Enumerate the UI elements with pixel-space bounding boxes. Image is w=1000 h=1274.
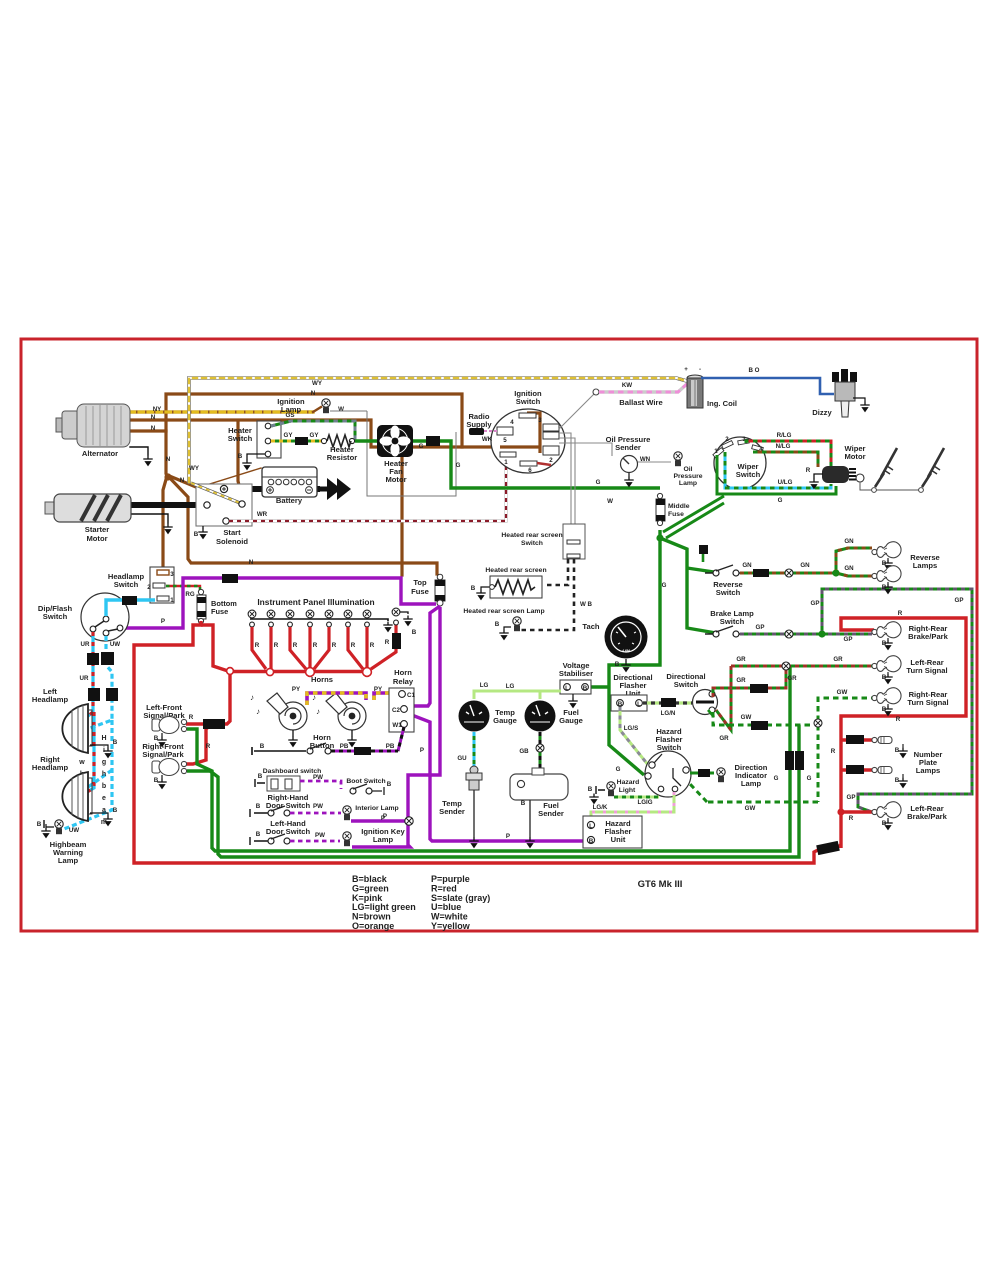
svg-text:WR: WR: [257, 511, 268, 518]
svg-text:GN: GN: [844, 538, 854, 545]
svg-text:R: R: [806, 467, 811, 474]
svg-text:Headlamp: Headlamp: [32, 695, 69, 704]
svg-text:B: B: [37, 821, 42, 828]
svg-text:B: B: [387, 781, 392, 788]
svg-text:LG/K: LG/K: [593, 804, 608, 811]
svg-text:WN: WN: [640, 456, 651, 463]
svg-text:Supply: Supply: [466, 420, 492, 429]
svg-text:B: B: [583, 685, 588, 692]
svg-text:B: B: [589, 838, 594, 845]
svg-text:R: R: [274, 642, 279, 649]
svg-text:GU: GU: [457, 755, 467, 762]
svg-text:GY: GY: [284, 432, 294, 439]
svg-text:Ballast Wire: Ballast Wire: [619, 398, 662, 407]
svg-text:R: R: [189, 714, 194, 721]
svg-text:-: -: [699, 366, 701, 373]
svg-text:Top: Top: [413, 578, 427, 587]
svg-text:N/LG: N/LG: [776, 443, 791, 450]
svg-text:Switch: Switch: [228, 434, 253, 443]
svg-text:GT6 Mk III: GT6 Mk III: [638, 879, 683, 890]
svg-text:Lamp: Lamp: [741, 779, 762, 788]
svg-text:e: e: [102, 795, 106, 802]
svg-text:NY: NY: [153, 406, 162, 413]
svg-text:Motor: Motor: [844, 452, 865, 461]
svg-text:B: B: [412, 629, 417, 636]
svg-text:Headlamp: Headlamp: [32, 763, 69, 772]
svg-text:R: R: [313, 642, 318, 649]
svg-text:P: P: [420, 747, 424, 754]
svg-text:G: G: [778, 497, 783, 504]
svg-text:O=orange: O=orange: [352, 921, 394, 931]
svg-text:P: P: [381, 815, 385, 822]
svg-text:Stabiliser: Stabiliser: [559, 669, 593, 678]
svg-text:C2: C2: [392, 707, 400, 714]
svg-text:Switch: Switch: [114, 580, 139, 589]
svg-text:3: 3: [170, 571, 174, 578]
svg-text:♪: ♪: [256, 707, 260, 716]
svg-text:GP: GP: [756, 624, 765, 631]
svg-text:LG/S: LG/S: [624, 725, 638, 732]
svg-text:Switch: Switch: [657, 743, 682, 752]
svg-text:B: B: [471, 585, 476, 592]
svg-text:WY: WY: [189, 465, 200, 472]
svg-text:GY: GY: [310, 432, 320, 439]
svg-text:N: N: [151, 425, 156, 432]
svg-text:Sender: Sender: [439, 807, 465, 816]
svg-text:GS: GS: [286, 412, 295, 419]
svg-text:GN: GN: [844, 565, 854, 572]
svg-text:PY: PY: [292, 686, 301, 693]
svg-text:GR: GR: [833, 656, 843, 663]
svg-text:R: R: [896, 716, 901, 723]
svg-text:Sender: Sender: [615, 443, 641, 452]
svg-text:WY: WY: [312, 380, 323, 387]
svg-text:L: L: [637, 701, 641, 708]
svg-text:R: R: [206, 743, 211, 750]
svg-text:Lamps: Lamps: [916, 766, 940, 775]
svg-text:W: W: [607, 498, 613, 505]
svg-text:G: G: [456, 462, 461, 469]
svg-text:PW: PW: [315, 832, 325, 839]
svg-text:UR: UR: [81, 641, 90, 648]
svg-text:Start: Start: [223, 528, 241, 537]
svg-text:Motor: Motor: [385, 475, 406, 484]
svg-text:Switch: Switch: [716, 588, 741, 597]
svg-text:1: 1: [714, 448, 718, 455]
svg-text:B: B: [260, 743, 265, 750]
svg-text:R: R: [255, 642, 260, 649]
svg-text:PB: PB: [340, 743, 349, 750]
svg-text:2: 2: [147, 584, 151, 591]
svg-text:B: B: [238, 453, 243, 460]
svg-text:B: B: [256, 803, 261, 810]
svg-text:Fuse: Fuse: [411, 587, 429, 596]
svg-text:UW: UW: [69, 827, 79, 834]
svg-text:Interior Lamp: Interior Lamp: [355, 805, 398, 812]
svg-text:Brake/Park: Brake/Park: [908, 632, 948, 641]
svg-text:Oil: Oil: [683, 466, 692, 473]
svg-text:GP: GP: [955, 597, 964, 604]
svg-text:Brake/Park: Brake/Park: [907, 812, 947, 821]
svg-text:Gauge: Gauge: [493, 716, 517, 725]
svg-text:Sender: Sender: [538, 809, 564, 818]
svg-text:LG: LG: [480, 682, 489, 689]
svg-text:B: B: [154, 777, 159, 784]
svg-text:Heated rear screen: Heated rear screen: [485, 567, 546, 574]
svg-text:Switch: Switch: [43, 612, 68, 621]
svg-text:Horn: Horn: [394, 668, 412, 677]
svg-text:Lamp: Lamp: [373, 835, 394, 844]
svg-text:GN: GN: [742, 562, 752, 569]
svg-text:Lamps: Lamps: [913, 561, 937, 570]
svg-text:P: P: [161, 618, 165, 625]
svg-text:W: W: [338, 406, 344, 413]
svg-text:4 6M: 4 6M: [622, 649, 630, 653]
svg-text:W1: W1: [392, 722, 402, 729]
svg-text:N: N: [151, 414, 156, 421]
svg-text:G: G: [774, 775, 779, 782]
svg-text:Fuse: Fuse: [211, 607, 228, 616]
svg-text:Lamp: Lamp: [679, 480, 697, 487]
svg-text:B: B: [615, 661, 620, 668]
svg-text:Dizzy: Dizzy: [812, 408, 832, 417]
svg-text:Relay: Relay: [393, 677, 414, 686]
svg-text:R: R: [831, 748, 836, 755]
svg-text:UR: UR: [80, 675, 89, 682]
svg-text:Starter: Starter: [85, 525, 110, 534]
svg-text:Middle: Middle: [668, 503, 690, 510]
svg-text:N: N: [180, 477, 185, 484]
svg-text:Signal/Park: Signal/Park: [142, 750, 184, 759]
svg-text:G: G: [616, 766, 621, 773]
svg-text:N: N: [249, 559, 254, 566]
svg-text:Light: Light: [619, 787, 636, 794]
svg-text:PB: PB: [386, 743, 395, 750]
svg-text:GW: GW: [741, 714, 752, 721]
svg-text:PW: PW: [313, 803, 323, 810]
svg-text:B: B: [256, 831, 261, 838]
svg-text:P: P: [506, 833, 510, 840]
svg-text:Switch: Switch: [674, 680, 699, 689]
svg-text:GR: GR: [736, 677, 746, 684]
svg-text:Turn Signal: Turn Signal: [906, 666, 947, 675]
svg-text:B: B: [113, 739, 118, 746]
svg-text:G: G: [419, 443, 424, 450]
svg-text:Switch: Switch: [516, 397, 541, 406]
svg-text:Heated rear screen: Heated rear screen: [501, 532, 562, 539]
svg-text:B: B: [588, 786, 593, 793]
svg-text:R: R: [385, 639, 390, 646]
svg-text:Switch: Switch: [521, 540, 543, 547]
svg-text:Solenoid: Solenoid: [216, 537, 248, 546]
svg-text:Pressure: Pressure: [673, 473, 702, 480]
svg-text:PY: PY: [374, 686, 383, 693]
svg-text:Instrument Panel Illumination: Instrument Panel Illumination: [257, 597, 374, 607]
svg-text:H: H: [101, 735, 106, 742]
svg-text:Switch: Switch: [720, 617, 745, 626]
svg-text:WK: WK: [482, 436, 493, 443]
svg-text:Fuse: Fuse: [668, 511, 684, 518]
svg-text:GP: GP: [847, 794, 856, 801]
svg-text:LG: LG: [506, 683, 515, 690]
svg-text:4: 4: [510, 419, 514, 426]
svg-text:h: h: [102, 771, 106, 778]
svg-text:6: 6: [528, 467, 532, 474]
svg-text:Hazard: Hazard: [617, 779, 640, 786]
svg-text:GW: GW: [837, 689, 848, 696]
svg-text:GN: GN: [800, 562, 810, 569]
svg-text:LGIG: LGIG: [637, 799, 652, 806]
svg-text:Gauge: Gauge: [559, 716, 583, 725]
svg-text:R: R: [351, 642, 356, 649]
svg-text:Battery: Battery: [276, 496, 303, 505]
svg-text:C1: C1: [407, 692, 415, 699]
svg-text:UW: UW: [110, 641, 120, 648]
svg-text:Tach: Tach: [582, 622, 600, 631]
svg-text:R: R: [332, 642, 337, 649]
svg-text:♪: ♪: [316, 707, 320, 716]
svg-text:LG/N: LG/N: [661, 710, 676, 717]
svg-text:B: B: [618, 701, 623, 708]
svg-text:Alternator: Alternator: [82, 449, 118, 458]
svg-text:GR: GR: [787, 675, 797, 682]
svg-text:Turn Signal: Turn Signal: [907, 698, 948, 707]
svg-text:Ing. Coil: Ing. Coil: [707, 399, 737, 408]
svg-text:Horns: Horns: [311, 675, 333, 684]
svg-text:G: G: [662, 582, 667, 589]
svg-text:w: w: [78, 759, 85, 766]
svg-text:GP: GP: [811, 600, 820, 607]
svg-text:L: L: [565, 685, 569, 692]
svg-text:GR: GR: [719, 735, 729, 742]
svg-text:N: N: [166, 456, 171, 463]
svg-text:W B: W B: [580, 601, 593, 608]
svg-text:Motor: Motor: [86, 534, 107, 543]
svg-text:KW: KW: [622, 382, 632, 389]
svg-text:R: R: [293, 642, 298, 649]
svg-text:PW: PW: [313, 774, 323, 781]
svg-text:B: B: [258, 773, 263, 780]
svg-text:B: B: [194, 531, 199, 538]
svg-text:L: L: [589, 823, 593, 830]
svg-text:Door Switch: Door Switch: [266, 801, 311, 810]
svg-text:N: N: [311, 390, 316, 397]
svg-text:Lamp: Lamp: [58, 856, 79, 865]
svg-text:♪: ♪: [250, 693, 254, 702]
svg-text:B: B: [521, 800, 526, 807]
svg-text:Heated rear screen Lamp: Heated rear screen Lamp: [463, 608, 544, 615]
svg-text:Door Switch: Door Switch: [266, 827, 311, 836]
svg-text:5: 5: [503, 437, 507, 444]
svg-text:B: B: [495, 621, 500, 628]
svg-text:1: 1: [170, 597, 174, 604]
svg-text:GR: GR: [736, 656, 746, 663]
svg-text:Resistor: Resistor: [327, 453, 357, 462]
svg-text:2: 2: [549, 457, 553, 464]
svg-text:Y=yellow: Y=yellow: [431, 921, 471, 931]
svg-text:GP: GP: [844, 636, 853, 643]
svg-text:G: G: [807, 775, 812, 782]
svg-text:U/LG: U/LG: [778, 479, 793, 486]
svg-text:GB: GB: [519, 748, 529, 755]
svg-text:R: R: [370, 642, 375, 649]
svg-text:Unit: Unit: [611, 835, 626, 844]
svg-text:Button: Button: [310, 741, 335, 750]
svg-text:3: 3: [538, 417, 542, 424]
svg-text:B: B: [154, 735, 159, 742]
svg-text:g: g: [102, 759, 106, 766]
svg-text:R: R: [898, 610, 903, 617]
svg-text:R: R: [849, 815, 854, 822]
svg-text:RG: RG: [185, 591, 194, 598]
svg-text:1: 1: [504, 459, 508, 466]
svg-text:B O: B O: [748, 367, 759, 374]
svg-text:R/LG: R/LG: [777, 432, 792, 439]
svg-text:B: B: [113, 807, 118, 814]
svg-text:b: b: [102, 783, 106, 790]
svg-text:2: 2: [725, 436, 729, 443]
svg-text:GW: GW: [745, 805, 756, 812]
svg-text:Switch: Switch: [736, 470, 761, 479]
svg-text:+: +: [684, 366, 688, 373]
svg-text:G: G: [596, 479, 601, 486]
